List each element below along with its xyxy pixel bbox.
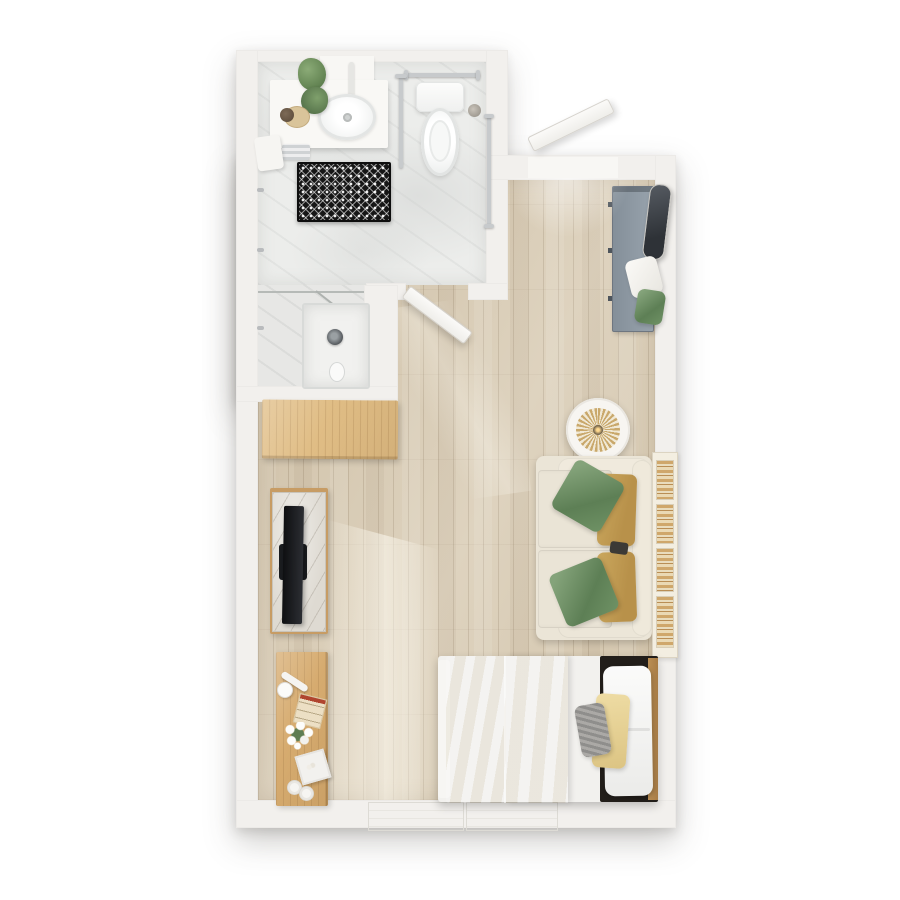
bench-foot-2	[608, 248, 612, 253]
toilet-seat	[429, 120, 451, 162]
shower-control-knob	[327, 329, 343, 345]
bench-foot-1	[608, 202, 612, 207]
window-1	[368, 802, 464, 831]
faucet	[349, 62, 354, 98]
grab-bar-wall	[487, 116, 491, 226]
wall-hook-1	[257, 188, 264, 192]
bench-pillow-green	[634, 288, 667, 326]
bookshelf-slot-2	[656, 504, 674, 544]
window-2	[466, 802, 558, 831]
entry-door	[527, 98, 615, 152]
sink-drain	[343, 113, 352, 122]
remote-control	[609, 541, 628, 555]
wood-cabinet	[262, 400, 398, 460]
wall-bath-doorway-right	[468, 283, 508, 300]
bookshelf-slot-4	[656, 596, 674, 648]
tv	[282, 506, 304, 624]
desk-cup-2	[299, 786, 314, 801]
grab-bar-wall-bracket-bottom	[484, 224, 494, 228]
vanity-backsplash-shelf	[320, 56, 374, 82]
plant-1	[298, 58, 326, 90]
duvet-panel-right	[506, 656, 568, 803]
wall-hook-3	[257, 326, 264, 330]
towel-bar-bracket-r	[476, 70, 480, 80]
bench-foot-3	[608, 296, 612, 301]
grab-bar-vertical	[399, 76, 403, 168]
shower-drain	[329, 362, 345, 382]
soap-bar	[280, 108, 294, 122]
grab-bar-bracket	[395, 74, 407, 78]
toilet-paper-holder	[468, 104, 481, 117]
shower-glass-panel	[258, 291, 364, 293]
floor-plan-canvas	[0, 0, 900, 900]
hanging-towel	[254, 134, 284, 171]
bookshelf-slot-3	[656, 548, 674, 592]
entry-opening	[528, 157, 618, 178]
grab-bar-wall-bracket-top	[484, 114, 494, 118]
wall-left	[236, 50, 258, 828]
desk-lamp-head	[277, 682, 293, 698]
bath-mat	[297, 162, 391, 222]
towel-bar	[404, 73, 480, 77]
towel-roll	[282, 144, 310, 160]
wall-hook-2	[257, 248, 264, 252]
desk-flowers	[284, 722, 314, 752]
light-fixture-bulb	[593, 425, 603, 435]
bookshelf-slot-1	[656, 460, 674, 500]
duvet-panel-left	[446, 656, 506, 803]
